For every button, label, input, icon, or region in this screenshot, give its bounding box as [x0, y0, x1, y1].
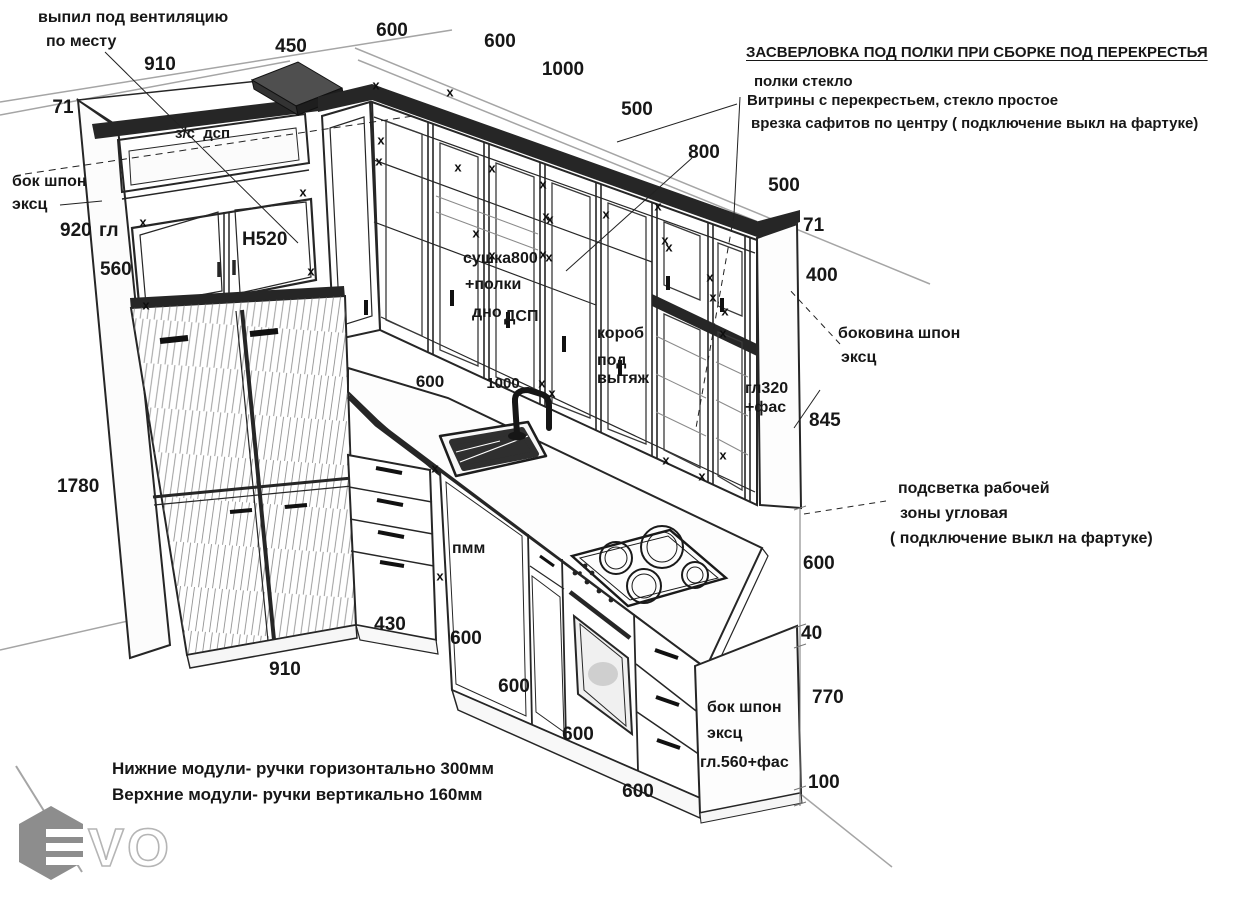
- upper-cabinet-run: [318, 84, 801, 508]
- evo-letters: VO: [88, 818, 172, 878]
- kitchen-drawing-page: VO выпил под вентиляциюпо месту910450600…: [0, 0, 1253, 900]
- evo-watermark: VO: [19, 806, 172, 880]
- kitchen-line-drawing: VO: [0, 0, 1253, 900]
- corner-drawer-unit: [348, 455, 438, 654]
- upper-right-side-panel: [757, 224, 801, 508]
